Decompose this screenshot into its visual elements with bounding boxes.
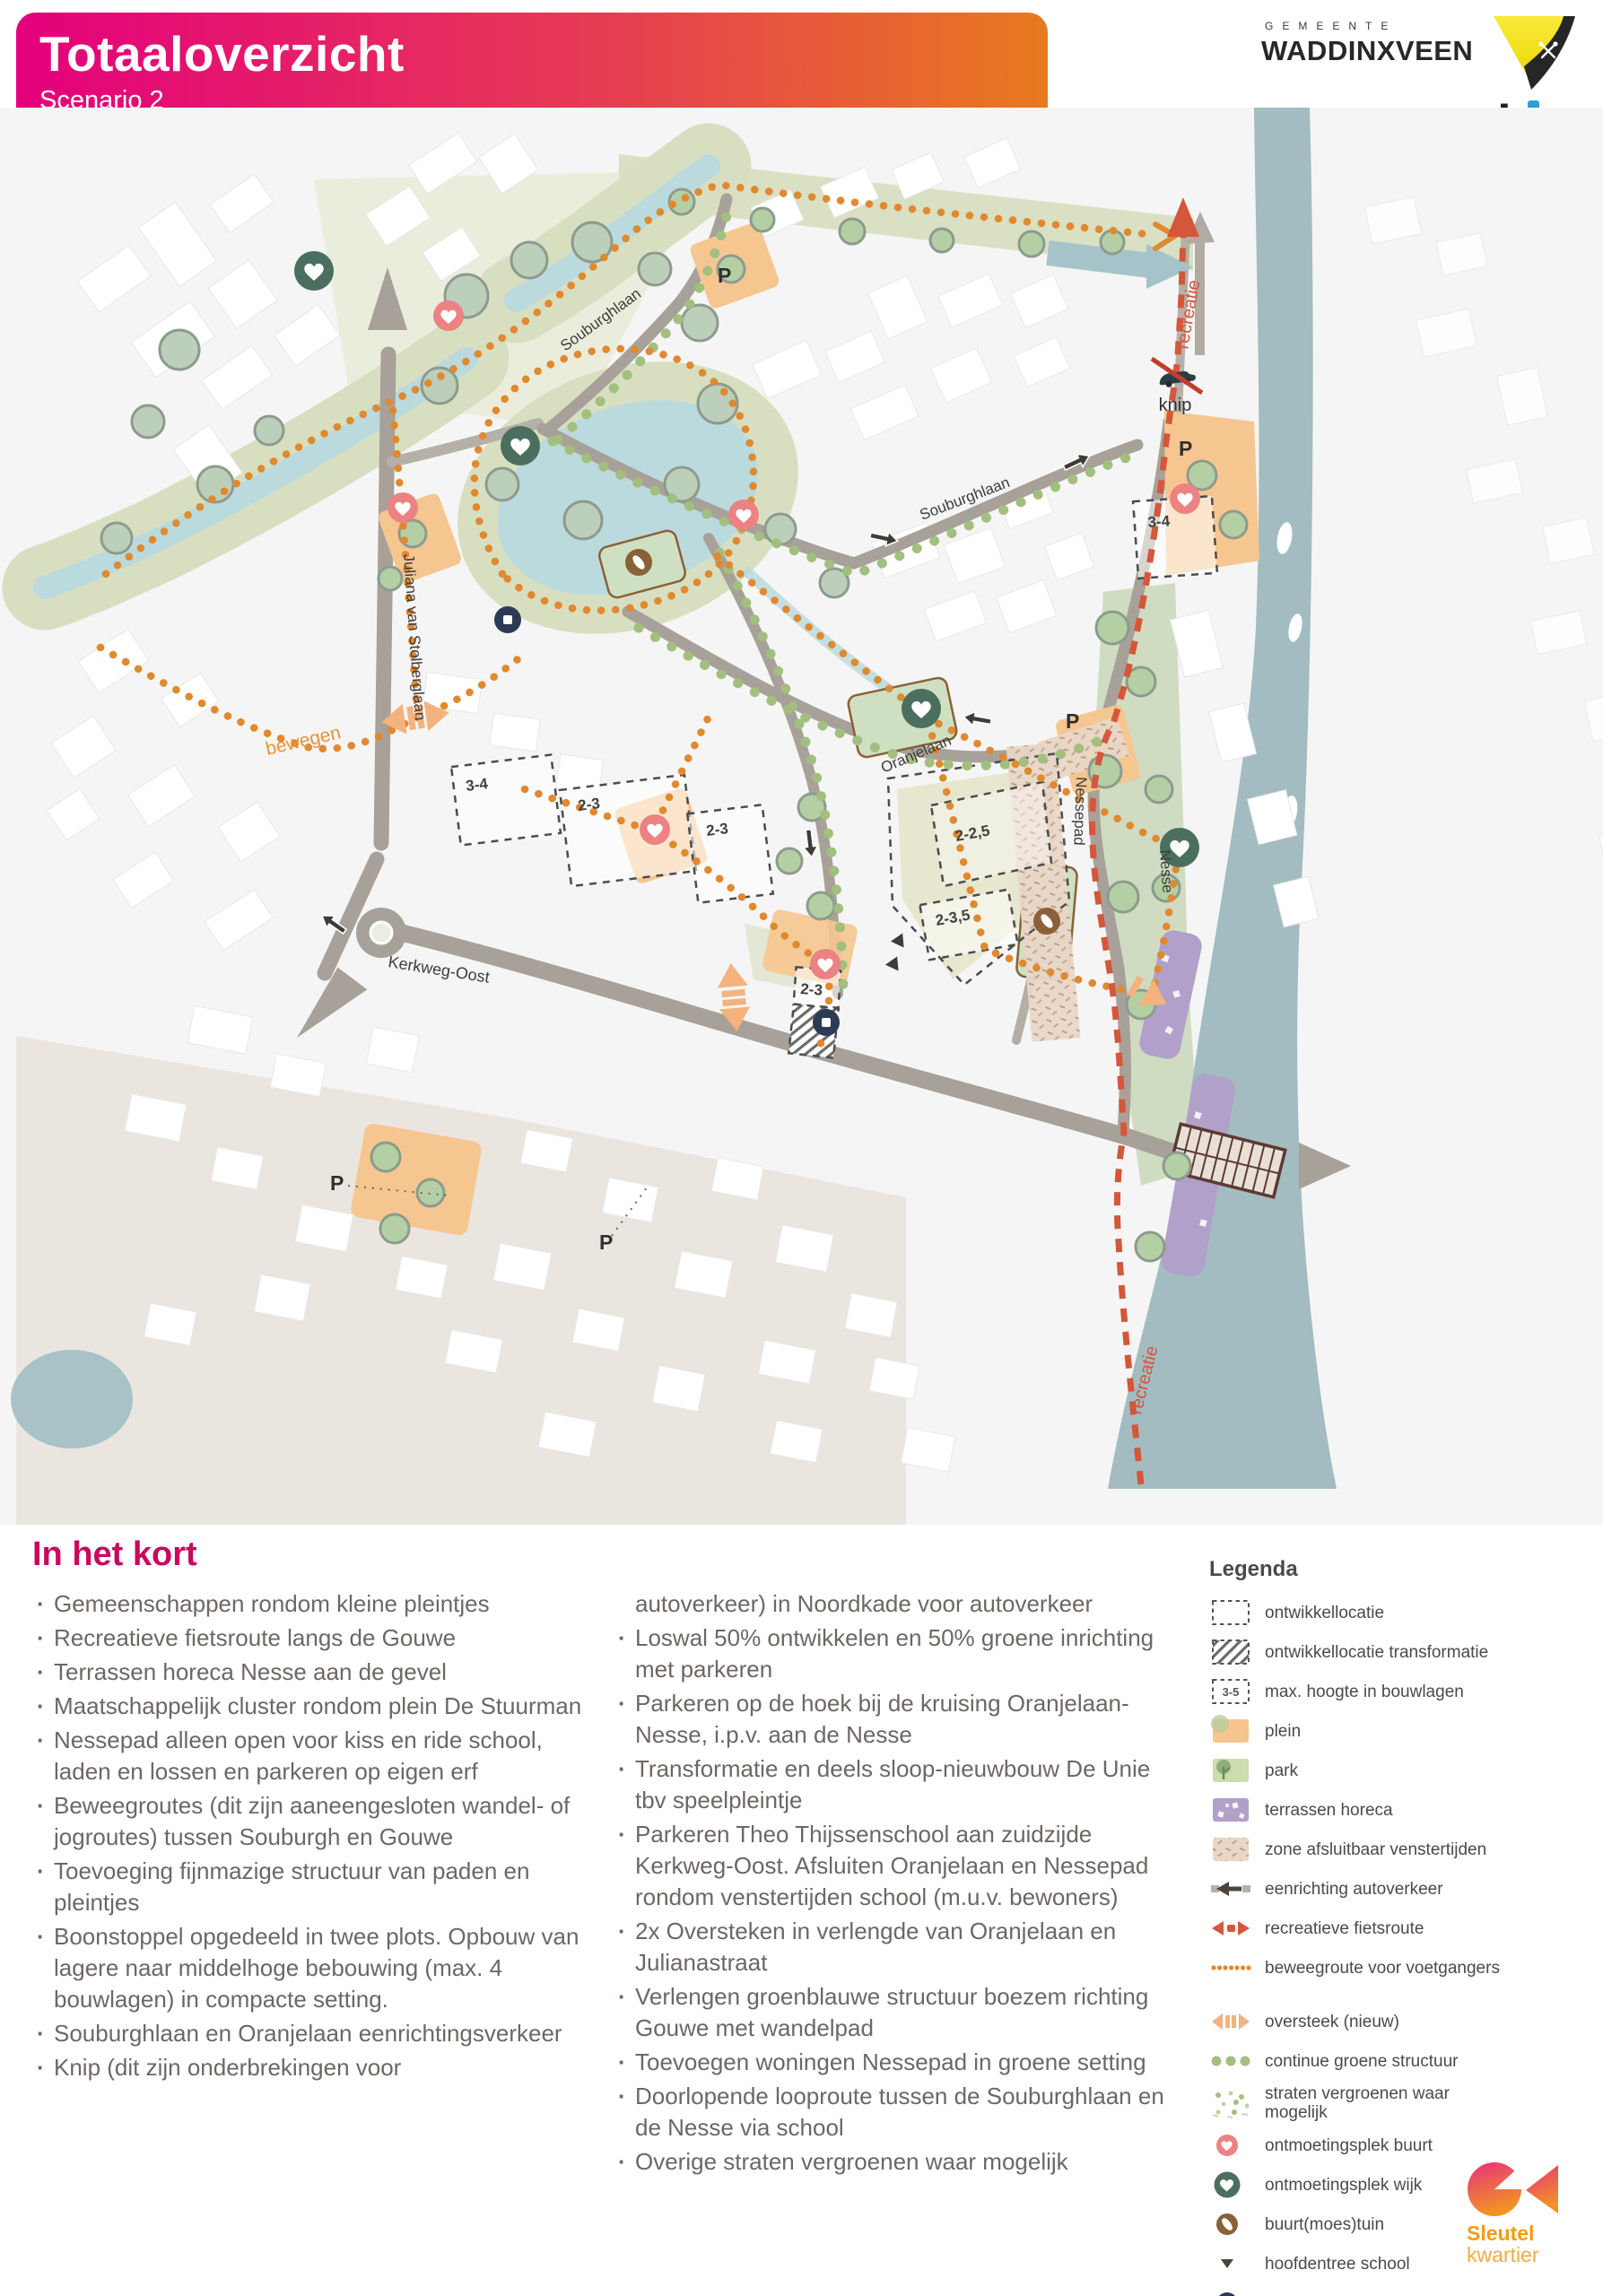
hatched-box-icon xyxy=(1209,1636,1252,1668)
bullet-item: Nessepad alleen open voor kiss en ride s… xyxy=(32,1725,587,1787)
bullet-item: Maatschappelijk cluster rondom plein De … xyxy=(32,1691,587,1722)
bullets-left-column: Gemeenschappen rondom kleine pleintjes R… xyxy=(32,1588,587,2180)
legend-item-ontwikkellocatie: ontwikkellocatie xyxy=(1209,1596,1595,1629)
legend-item-ontmoetingsplek-buurt: ontmoetingsplek buurt xyxy=(1209,2129,1595,2161)
bullet-item: Doorlopende looproute tussen de Souburgh… xyxy=(614,2081,1168,2144)
bullet-item: Gemeenschappen rondom kleine pleintjes xyxy=(32,1588,587,1620)
height-label: 3-4 xyxy=(465,775,489,795)
parking-label: P xyxy=(1066,709,1079,733)
gemeente-waddinxveen-logo: GEMEENTE WADDINXVEEN xyxy=(1261,20,1571,97)
height-label: 2-3 xyxy=(800,980,823,999)
plan-map: Juliana van Stolberglaan Souburghlaan So… xyxy=(0,108,1603,1525)
bullet-item: Recreatieve fietsroute langs de Gouwe xyxy=(32,1622,587,1654)
bullet-item: Overige straten vergroenen waar mogelijk xyxy=(614,2146,1168,2178)
kwartier-label: kwartier xyxy=(1467,2244,1574,2266)
bullet-item: Boonstoppel opgedeeld in twee plots. Opb… xyxy=(32,1921,587,2015)
knip-label: knip xyxy=(1159,396,1192,415)
bullet-item: Parkeren op de hoek bij de kruising Oran… xyxy=(614,1688,1168,1751)
plein-swatch-icon xyxy=(1209,1715,1252,1747)
bullet-item: Terrassen horeca Nesse aan de gevel xyxy=(32,1657,587,1688)
crossing-icon xyxy=(1209,2005,1252,2038)
parking-label: P xyxy=(330,1171,344,1195)
bullet-item: 2x Oversteken in verlengde van Oranjelaa… xyxy=(614,1916,1168,1979)
venstertijden-swatch-icon xyxy=(1209,1833,1252,1865)
legend-item-straten-vergroenen: straten vergroenen waar mogelijk xyxy=(1209,2084,1595,2122)
legend-item-groene-structuur: continue groene structuur xyxy=(1209,2045,1595,2077)
height-box-icon: 3-5 xyxy=(1209,1675,1252,1708)
parking-label: P xyxy=(718,264,731,287)
park-swatch-icon xyxy=(1209,1754,1252,1787)
section-heading: In het kort xyxy=(32,1535,1189,1574)
street-label-nessepad: Nessepad xyxy=(1070,777,1090,846)
heart-pink-icon xyxy=(1209,2129,1252,2161)
height-label: 2-3 xyxy=(705,820,729,839)
waddinxveen-triangle-icon xyxy=(1492,14,1578,93)
water-pond-sw xyxy=(11,1350,133,1448)
poster-page: Totaaloverzicht Scenario 2 GEMEENTE WADD… xyxy=(0,0,1603,2296)
bullet-continuation: autoverkeer) in Noordkade voor autoverke… xyxy=(614,1588,1168,1620)
terrace-swatch-icon xyxy=(1209,1794,1252,1826)
legend-item-max-hoogte: 3-5 max. hoogte in bouwlagen xyxy=(1209,1675,1595,1708)
bullet-item: Parkeren Theo Thijssenschool aan zuidzij… xyxy=(614,1819,1168,1913)
bullet-item: Knip (dit zijn onderbrekingen voor xyxy=(32,2052,587,2083)
bullet-item: Transformatie en deels sloop-nieuwbouw D… xyxy=(614,1753,1168,1816)
dots-green-icon xyxy=(1209,2045,1252,2077)
in-het-kort-section: In het kort Gemeenschappen rondom kleine… xyxy=(32,1535,1189,2180)
legend-item-venstertijden: zone afsluitbaar venstertijden xyxy=(1209,1833,1595,1865)
legend-item-terrassen: terrassen horeca xyxy=(1209,1794,1595,1826)
height-label: 2-3 xyxy=(577,795,601,814)
page-title: Totaaloverzicht xyxy=(39,25,1048,83)
legend-item-plein: plein xyxy=(1209,1715,1595,1747)
sleutel-label: Sleutel xyxy=(1467,2222,1574,2244)
legend-item-transformatie: ontwikkellocatie transformatie xyxy=(1209,1636,1595,1668)
bullet-item: Toevoegen woningen Nessepad in groene se… xyxy=(614,2047,1168,2078)
bullet-item: Verlengen groenblauwe structuur boezem r… xyxy=(614,1981,1168,2044)
bullet-item: Toevoeging fijnmazige structuur van pade… xyxy=(32,1856,587,1918)
scatter-green-icon xyxy=(1209,2087,1252,2119)
legend-heading: Legenda xyxy=(1209,1557,1595,1582)
legend-item-nieuwe-functie: mogelijk nieuwe functie xyxy=(1209,2287,1595,2296)
bullets-right-column: autoverkeer) in Noordkade voor autoverke… xyxy=(614,1588,1168,2180)
dashed-box-icon xyxy=(1209,1596,1252,1629)
sleutelkwartier-icon xyxy=(1467,2159,1560,2218)
entrance-triangle-icon xyxy=(1209,2248,1252,2280)
bullet-item: Souburghlaan en Oranjelaan eenrichtingsv… xyxy=(32,2018,587,2049)
legend-item-park: park xyxy=(1209,1754,1595,1787)
oneway-arrow-icon xyxy=(1209,1873,1252,1905)
garden-icon xyxy=(1209,2208,1252,2240)
heart-green-icon xyxy=(1209,2169,1252,2201)
road-juliana xyxy=(381,354,388,843)
legend-item-eenrichting: eenrichting autoverkeer xyxy=(1209,1873,1595,1905)
height-label: 3-4 xyxy=(1147,512,1171,531)
roundabout xyxy=(356,908,406,958)
bullet-item: Loswal 50% ontwikkelen en 50% groene inr… xyxy=(614,1622,1168,1685)
svg-text:3-5: 3-5 xyxy=(1223,1685,1240,1699)
sleutelkwartier-logo: Sleutel kwartier xyxy=(1467,2159,1574,2266)
parking-label: P xyxy=(599,1231,613,1254)
legend-item-beweegroute: beweegroute voor voetgangers xyxy=(1209,1952,1595,1984)
parking-label: P xyxy=(1179,437,1192,460)
legend-item-oversteek: oversteek (nieuw) xyxy=(1209,2005,1595,2038)
street-label-nesse: Nesse xyxy=(1156,849,1176,893)
new-function-icon xyxy=(1209,2287,1252,2296)
dots-orange-icon xyxy=(1209,1952,1252,1984)
bullet-item: Beweegroutes (dit zijn aaneengesloten wa… xyxy=(32,1790,587,1853)
legend-item-fietsroute: recreatieve fietsroute xyxy=(1209,1912,1595,1944)
cycle-route-icon xyxy=(1209,1912,1252,1944)
